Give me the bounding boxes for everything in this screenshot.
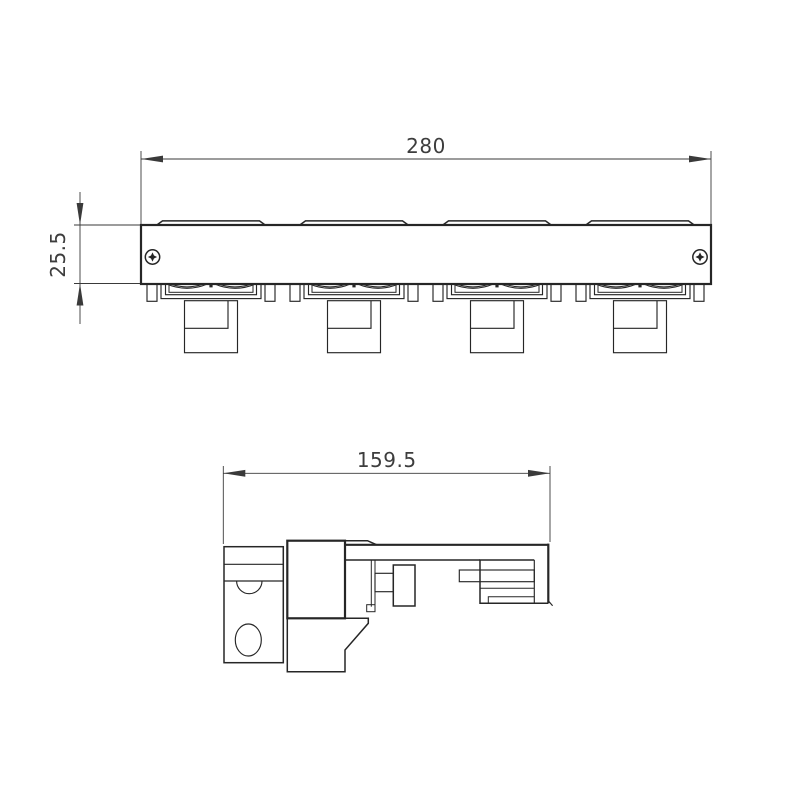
end-slot — [488, 597, 534, 604]
lamp-module-3 — [433, 221, 561, 353]
lamp-module-2 — [290, 221, 418, 353]
lamp-module-1 — [147, 221, 275, 353]
arrow-down-icon — [77, 203, 84, 225]
pivot-plate — [367, 560, 415, 612]
front-view: 280 25.5 — [46, 134, 711, 353]
side-width-label: 159.5 — [357, 448, 417, 472]
arrow-right-icon — [689, 156, 711, 163]
end-section — [459, 560, 548, 603]
front-height-label: 25.5 — [46, 231, 70, 278]
arrow-left-icon — [223, 470, 245, 477]
technical-drawing: 280 25.5 159.5 — [0, 0, 800, 800]
front-width-dimension: 280 — [141, 134, 711, 224]
front-height-dimension: 25.5 — [46, 192, 141, 324]
arrow-up-icon — [77, 284, 84, 306]
screw-left — [145, 250, 159, 264]
lamp-module-4 — [576, 221, 704, 353]
screw-right — [693, 250, 707, 264]
side-width-dimension: 159.5 — [223, 448, 550, 544]
drawing-canvas: 280 25.5 159.5 — [0, 0, 800, 800]
mounting-bracket — [224, 547, 283, 663]
arrow-left-icon — [141, 156, 163, 163]
mounting-plate — [459, 570, 534, 582]
bracket-notch — [237, 581, 262, 594]
arrow-right-icon — [528, 470, 550, 477]
bracket-hole — [235, 624, 261, 656]
side-view: 159.5 — [223, 448, 552, 672]
lamp-head-skirt — [287, 618, 368, 671]
front-width-label: 280 — [406, 134, 446, 158]
housing-bar — [141, 225, 711, 284]
knob-cap — [393, 565, 415, 606]
knob-shaft — [375, 573, 393, 591]
